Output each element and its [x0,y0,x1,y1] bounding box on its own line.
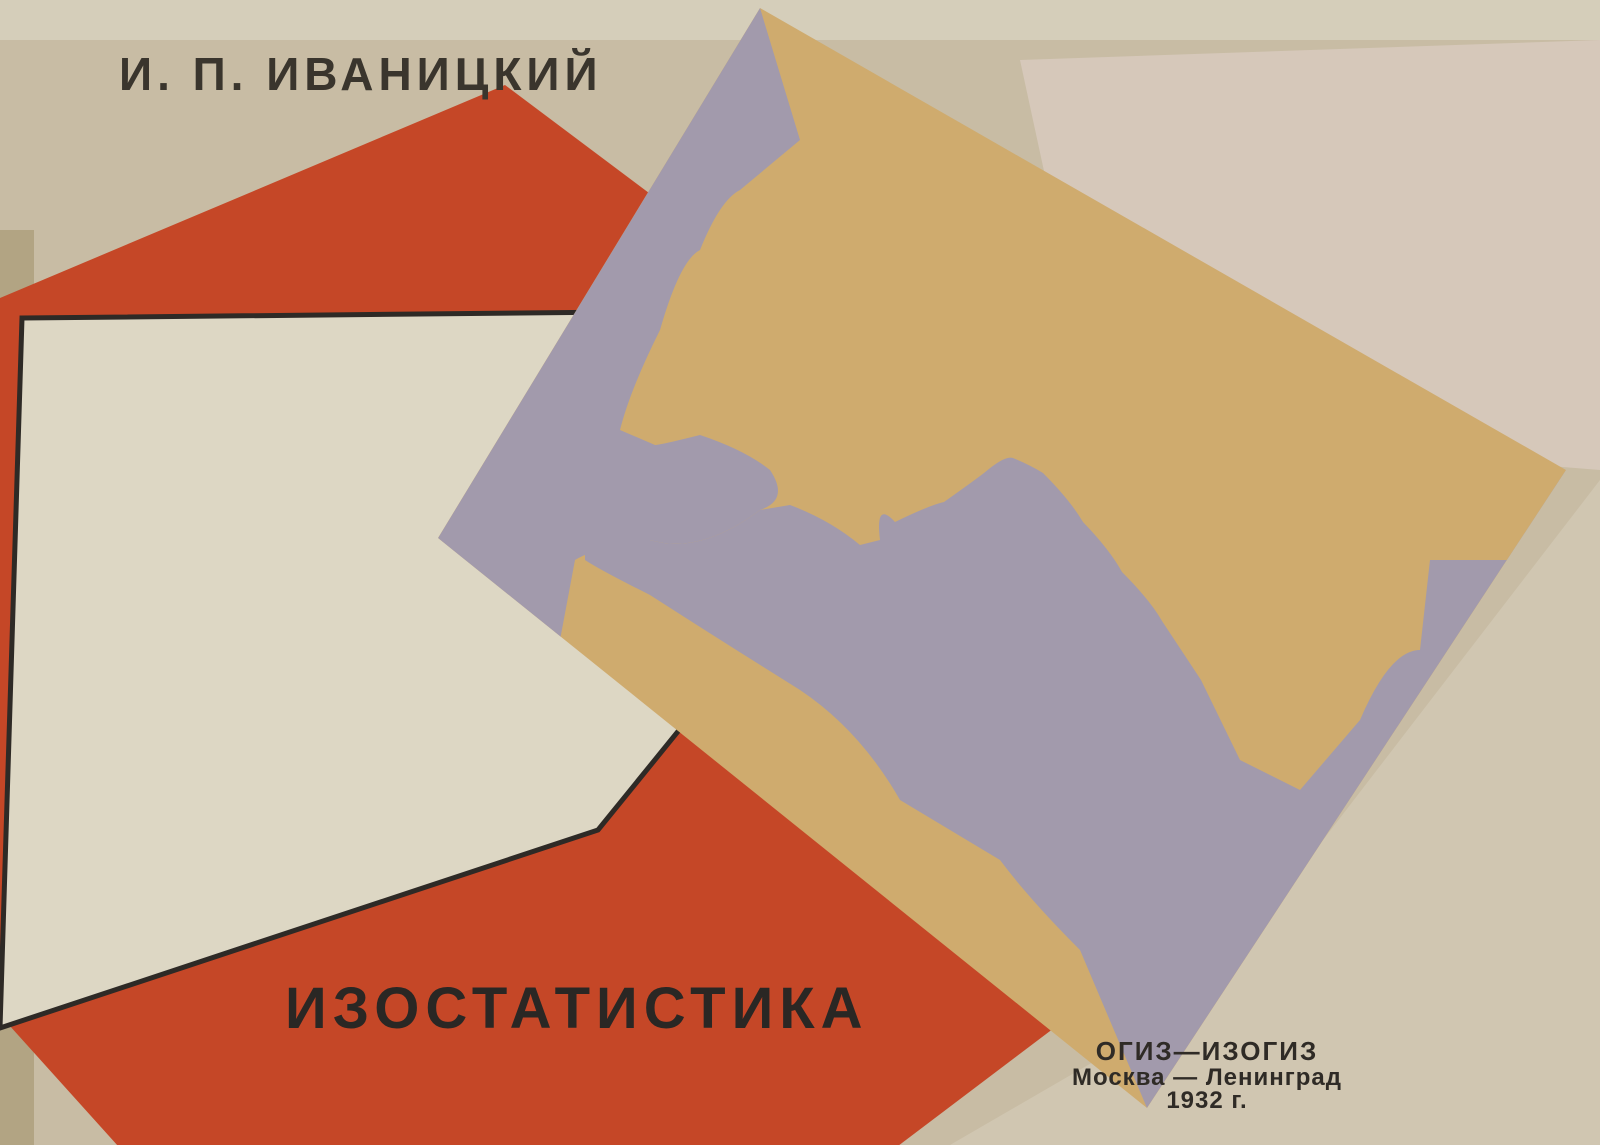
svg-text:И. П. ИВАНИЦКИЙ: И. П. ИВАНИЦКИЙ [119,48,603,100]
svg-text:ОГИЗ—ИЗОГИЗ: ОГИЗ—ИЗОГИЗ [1096,1036,1319,1066]
svg-text:ИЗОСТАТИСТИКА: ИЗОСТАТИСТИКА [285,976,869,1041]
svg-text:1932 г.: 1932 г. [1166,1087,1247,1114]
